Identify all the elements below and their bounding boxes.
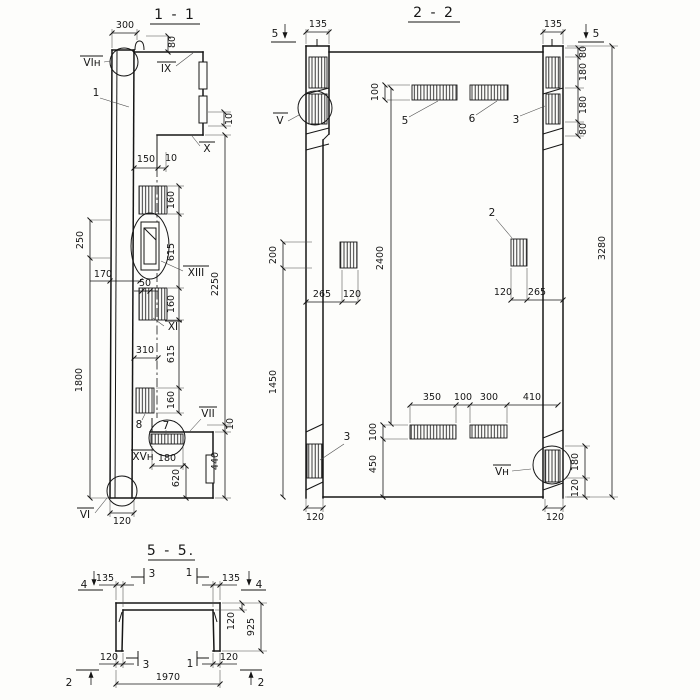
- cut-marker-2-left: 2: [66, 670, 99, 689]
- rib-plate-hatched: [546, 94, 560, 124]
- dim-300: 300: [116, 20, 134, 31]
- part-label-6: 6: [469, 113, 476, 125]
- node-label-xiii: XIII: [188, 267, 204, 279]
- node-label-xvn: XVн: [132, 451, 153, 463]
- rib-plate-hatched: [545, 450, 560, 482]
- section-5-5: 5 - 5. 4 4 3 1: [66, 543, 267, 689]
- anchor-element-xiii: [141, 222, 159, 270]
- marker-1-bottom-text: 1: [187, 658, 194, 670]
- dim-1450: 1450: [268, 370, 279, 394]
- marker-2-right-text: 2: [258, 677, 265, 689]
- embed-plate-hatched: [139, 186, 167, 214]
- section-2-2-title: 2 - 2: [413, 5, 455, 21]
- dim-615a: 615: [166, 243, 177, 261]
- dim-2400: 2400: [375, 246, 386, 270]
- dim-3280: 3280: [597, 236, 608, 260]
- dim-120-col-left: 120: [306, 512, 324, 523]
- embed-bar-5: [412, 85, 457, 100]
- node-label-vii: VII: [201, 408, 214, 420]
- dim-150: 150: [137, 154, 155, 165]
- embed-bar: [410, 425, 456, 439]
- dim-180b: 180: [578, 96, 589, 114]
- part-label-3-bottom: 3: [344, 431, 351, 443]
- marker-2-left-text: 2: [66, 677, 73, 689]
- dim-160c: 160: [166, 391, 177, 409]
- node-label-vin: VIн: [83, 57, 100, 69]
- dim-160b: 160: [166, 295, 177, 313]
- dim-180a: 180: [578, 63, 589, 81]
- dim-135-right: 135: [544, 19, 562, 30]
- node-label-v: V: [276, 115, 284, 127]
- dim-170: 170: [94, 269, 112, 280]
- overall-3280: 3280: [567, 46, 618, 497]
- node-label-vn: Vн: [495, 466, 509, 478]
- edge-plate: [199, 96, 207, 123]
- embed-plate-hatched: [139, 288, 167, 320]
- dim-120-bottom-right: 120: [220, 652, 238, 663]
- dim-120-col-right: 120: [546, 512, 564, 523]
- dim-80: 80: [167, 36, 178, 48]
- dim-100-bottom: 100: [368, 423, 379, 441]
- overall-right-dims: 2250 10 440: [205, 135, 236, 498]
- left-dims: 250 1800 170: [74, 220, 140, 498]
- part-label-2: 2: [489, 207, 496, 219]
- dim-300: 300: [480, 392, 498, 403]
- embed-plate-hatched: [136, 388, 154, 413]
- cut-marker-3-bottom: 3: [126, 651, 149, 671]
- dim-120-mid: 120: [494, 287, 512, 298]
- top-dims: 300 80 10 150 10: [112, 20, 235, 172]
- left-rib: [298, 39, 332, 498]
- embed-plate-2: [511, 239, 527, 266]
- marker-4-left-text: 4: [81, 579, 88, 591]
- rib-plate-hatched: [309, 57, 327, 88]
- cut-marker-5-right: 5: [578, 24, 604, 42]
- node-label-vi: VI: [80, 509, 90, 521]
- right-rib: [533, 39, 571, 498]
- cut-marker-3-top: 3: [131, 568, 155, 584]
- part-label-5: 5: [402, 115, 409, 127]
- rib-plate-hatched: [546, 57, 560, 88]
- node-label-xi: XI: [168, 321, 178, 333]
- marker-3-top-text: 3: [149, 568, 156, 580]
- cut-marker-5-left: 5: [271, 24, 296, 42]
- embed-plate: [340, 242, 357, 268]
- dim-160a: 160: [166, 191, 177, 209]
- cut-marker-1-bottom: 1: [187, 651, 209, 670]
- rib-plate-hatched: [307, 444, 322, 478]
- dim-100-top: 100: [370, 83, 381, 101]
- marker-5-right-text: 5: [593, 28, 600, 40]
- dim-250: 250: [75, 231, 86, 249]
- dim-135-left: 135: [309, 19, 327, 30]
- part-label-8: 8: [136, 419, 143, 431]
- dim-925: 925: [246, 618, 257, 636]
- dim-200: 200: [268, 246, 279, 264]
- dim-450: 450: [368, 455, 379, 473]
- dim-120-top: 120: [226, 612, 237, 630]
- part-label-3-top: 3: [513, 114, 520, 126]
- dim-180-right: 180: [570, 453, 581, 471]
- dim-440: 440: [210, 452, 221, 470]
- section-1-1: 1 - 1: [74, 7, 236, 527]
- structural-drawing: 1 - 1: [0, 0, 700, 700]
- cut-marker-2-right: 2: [240, 670, 264, 689]
- channel-outline: [116, 603, 220, 651]
- dim-120-left: 120: [343, 289, 361, 300]
- section-1-1-title: 1 - 1: [154, 7, 196, 23]
- right-top-chain: 80 180 180 80: [565, 46, 589, 136]
- marker-1-top-text: 1: [186, 567, 193, 579]
- marker-3-bottom-text: 3: [143, 659, 150, 671]
- rib-plate-hatched: [309, 94, 327, 124]
- dim-135-right: 135: [222, 573, 240, 584]
- cut-marker-4-right: 4: [241, 571, 266, 591]
- dim-80b: 80: [578, 123, 589, 135]
- edge-plate: [199, 62, 207, 89]
- dim-10-top: 10: [224, 113, 235, 125]
- drawing-sheet: 1 - 1: [0, 0, 700, 700]
- lifting-loop: [135, 41, 144, 50]
- dim-310: 310: [136, 345, 154, 356]
- dim-80a: 80: [578, 46, 589, 58]
- dim-620: 620: [171, 469, 182, 487]
- embed-bar: [470, 425, 507, 438]
- dim-100-mid: 100: [454, 392, 472, 403]
- dim-120-right: 120: [570, 479, 581, 497]
- dim-120: 120: [113, 516, 131, 527]
- dim-1800: 1800: [74, 368, 85, 392]
- dim-120-bottom-left: 120: [100, 652, 118, 663]
- dim-615b: 615: [166, 345, 177, 363]
- dim-410: 410: [523, 392, 541, 403]
- dim-265-right: 265: [528, 287, 546, 298]
- dim-1970: 1970: [156, 672, 180, 683]
- dim-2250: 2250: [210, 272, 221, 296]
- section-2-2: 2 - 2 5 5: [268, 5, 618, 523]
- embed-bar-6: [470, 85, 508, 100]
- dim-350: 350: [423, 392, 441, 403]
- section-5-5-title: 5 - 5.: [147, 543, 195, 559]
- dim-265-left: 265: [313, 289, 331, 300]
- corner-plate-hatched: [151, 434, 183, 444]
- marker-4-right-text: 4: [256, 579, 263, 591]
- marker-5-left-text: 5: [272, 28, 279, 40]
- dim-10-mid: 10: [165, 153, 177, 164]
- node-label-ix: IX: [161, 63, 171, 75]
- dim-135-left: 135: [96, 573, 114, 584]
- part-label-1: 1: [93, 87, 100, 99]
- cut-marker-1-top: 1: [186, 567, 209, 584]
- node-label-x: X: [203, 143, 210, 155]
- dim-180: 180: [158, 453, 176, 464]
- dim-50: 50: [139, 278, 151, 289]
- dim-10-low: 10: [225, 418, 236, 430]
